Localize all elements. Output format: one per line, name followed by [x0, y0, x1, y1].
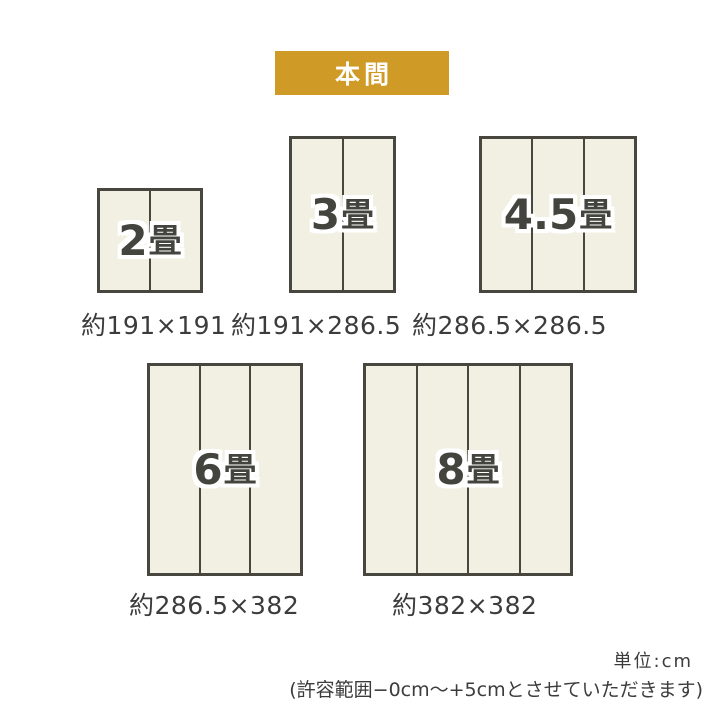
- mat-size-label-3jo: 3畳: [292, 139, 393, 290]
- tatami-size-chart: 本間 2畳 約191×191 3畳 約191×286.5 4.5畳 約28: [0, 0, 720, 720]
- mat-size-label-8jo: 8畳: [366, 366, 570, 573]
- mat-size-unit: 畳: [467, 453, 500, 486]
- mat-size-unit: 畳: [341, 198, 374, 231]
- mat-diagram-6jo: 6畳: [147, 363, 303, 576]
- mat-dimensions-8jo: 約382×382: [392, 586, 537, 622]
- mat-size-unit: 畳: [224, 453, 257, 486]
- mat-diagram-2jo: 2畳: [97, 188, 203, 293]
- mat-dimensions-3jo: 約191×286.5: [231, 306, 401, 342]
- tolerance-note: (許容範囲−0cm〜+5cmとさせていただきます): [289, 675, 703, 702]
- mat-dimensions-6jo: 約286.5×382: [129, 586, 299, 622]
- mat-size-value: 6: [193, 449, 222, 491]
- mat-diagram-3jo: 3畳: [289, 136, 396, 293]
- mat-size-value: 8: [436, 449, 465, 491]
- mat-diagram-4-5jo: 4.5畳: [479, 136, 637, 293]
- mat-size-label-2jo: 2畳: [100, 191, 200, 290]
- mat-size-value: 3: [311, 194, 340, 236]
- unit-label: 単位:cm: [614, 647, 694, 673]
- mat-diagram-8jo: 8畳: [363, 363, 573, 576]
- mat-dimensions-4-5jo: 約286.5×286.5: [412, 306, 607, 342]
- mat-size-unit: 畳: [149, 224, 182, 257]
- mat-size-label-6jo: 6畳: [150, 366, 300, 573]
- size-standard-badge: 本間: [275, 51, 449, 95]
- mat-size-unit: 畳: [579, 198, 612, 231]
- mat-size-label-4-5jo: 4.5畳: [482, 139, 634, 290]
- mat-size-value: 2: [118, 220, 147, 262]
- mat-size-value: 4.5: [504, 194, 578, 236]
- mat-dimensions-2jo: 約191×191: [81, 306, 226, 342]
